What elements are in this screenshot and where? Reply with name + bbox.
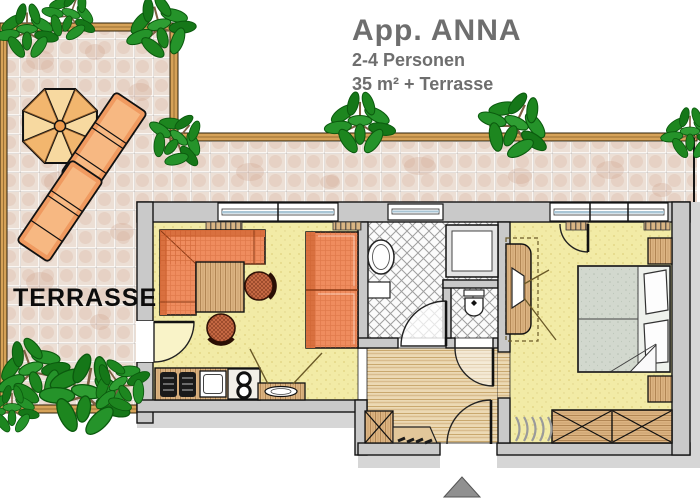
apartment-capacity: 2-4 Personen: [352, 48, 522, 72]
stove-icon: [228, 369, 260, 399]
entrance-arrow-icon: [444, 477, 480, 497]
floor-plan-canvas: [0, 0, 700, 500]
windows: [218, 203, 668, 221]
floor-plan-page: App. ANNA 2-4 Personen 35 m² + Terrasse …: [0, 0, 700, 500]
apartment-size: 35 m² + Terrasse: [352, 72, 522, 96]
washbasin-icon: [368, 240, 394, 274]
coffee-table: [196, 262, 244, 312]
pillow: [644, 270, 668, 314]
terrace-door-threshold: [136, 321, 154, 362]
shower-icon: [446, 225, 498, 277]
title-block: App. ANNA 2-4 Personen 35 m² + Terrasse: [352, 14, 522, 96]
nightstand: [648, 238, 672, 264]
double-bed: [578, 266, 670, 372]
wicker-chair: [245, 272, 275, 300]
sofa-bed: [306, 232, 358, 348]
entrance-threshold: [440, 455, 497, 468]
wicker-chair: [207, 314, 235, 344]
bedroom-window: [550, 203, 668, 221]
wardrobe: [552, 410, 672, 443]
nightstand: [648, 376, 672, 402]
living-room-window: [218, 203, 338, 221]
bath-cabinet: [368, 282, 390, 298]
hall-cabinet: [365, 411, 393, 443]
apartment-title: App. ANNA: [352, 14, 522, 48]
shoe-rack: [393, 427, 437, 443]
kitchen-sink-icon: [200, 371, 226, 397]
toilet-icon: [464, 290, 484, 316]
bedroom-passage: [498, 352, 510, 398]
bathroom-window: [388, 204, 443, 220]
terrace-label: TERRASSE: [13, 284, 157, 313]
